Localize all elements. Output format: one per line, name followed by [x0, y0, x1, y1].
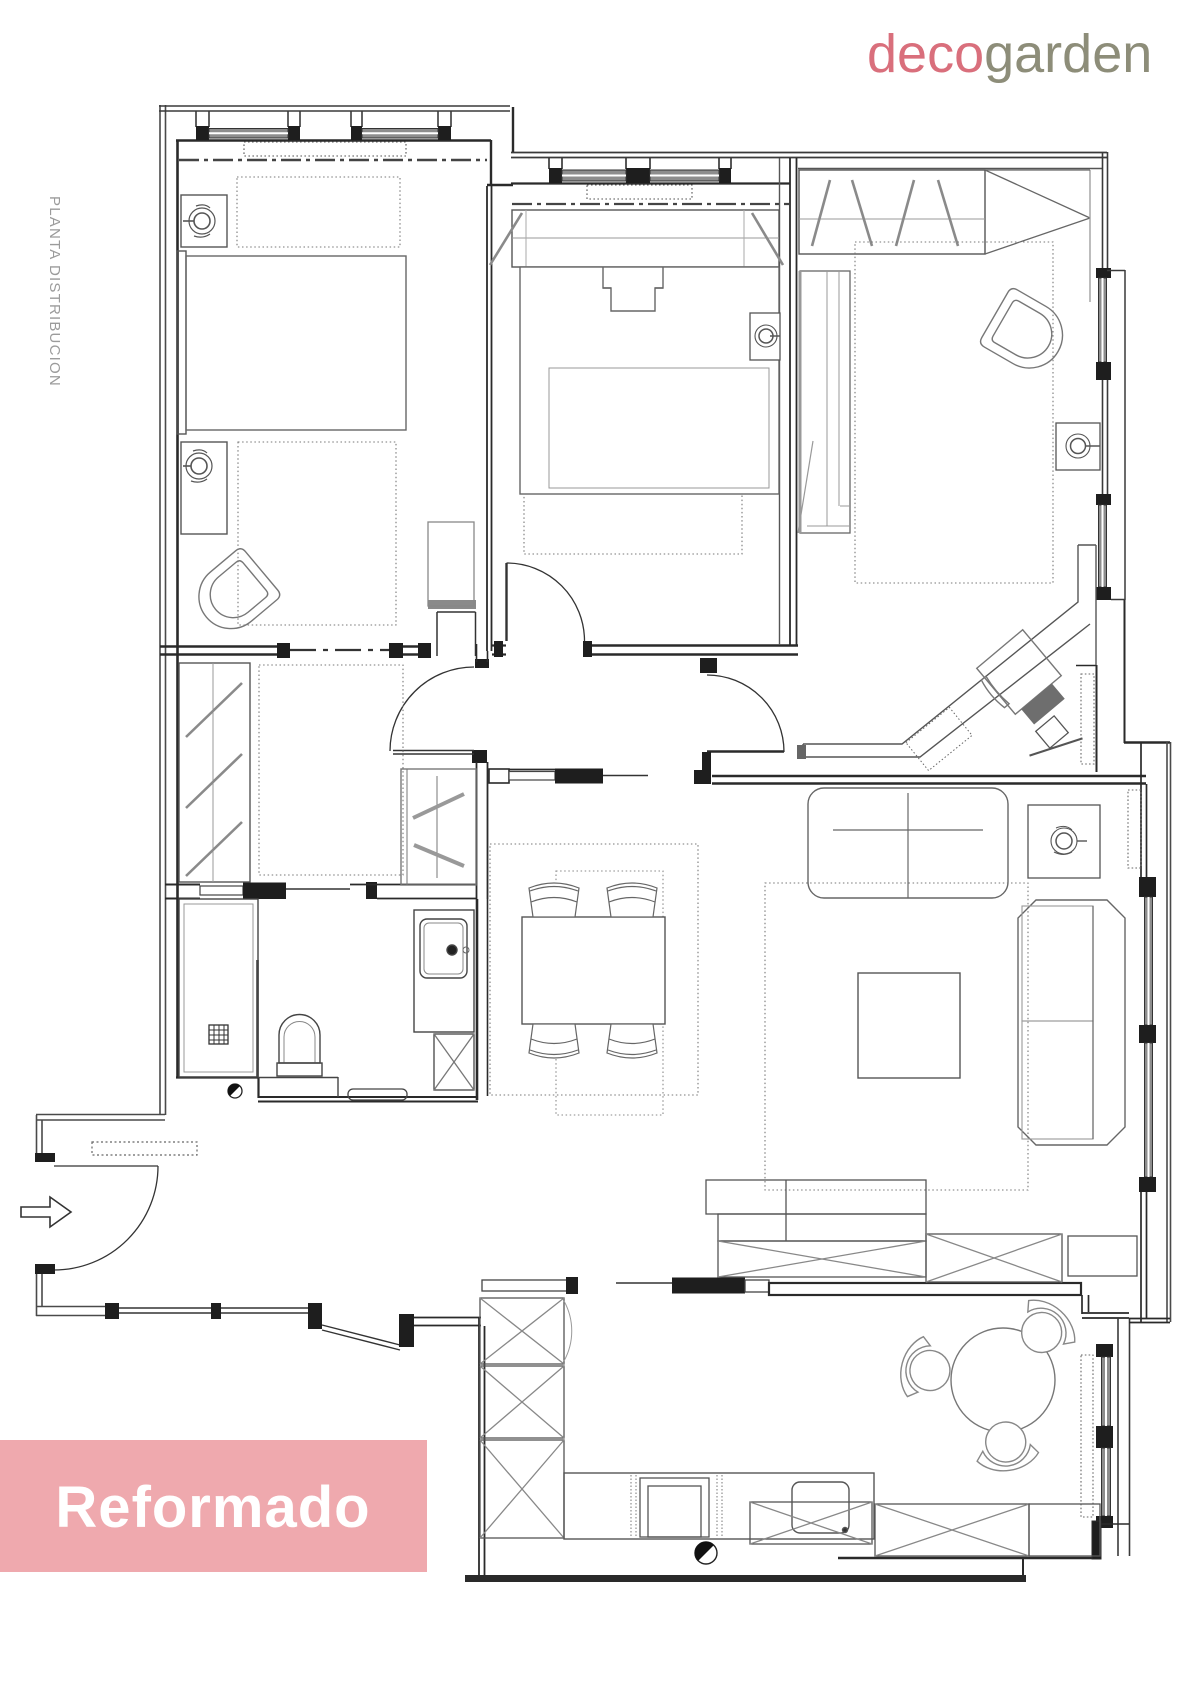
svg-text:Reformado: Reformado	[55, 1475, 370, 1540]
svg-text:PLANTA DISTRIBUCION: PLANTA DISTRIBUCION	[46, 196, 63, 387]
svg-text:decogarden: decogarden	[867, 24, 1152, 84]
